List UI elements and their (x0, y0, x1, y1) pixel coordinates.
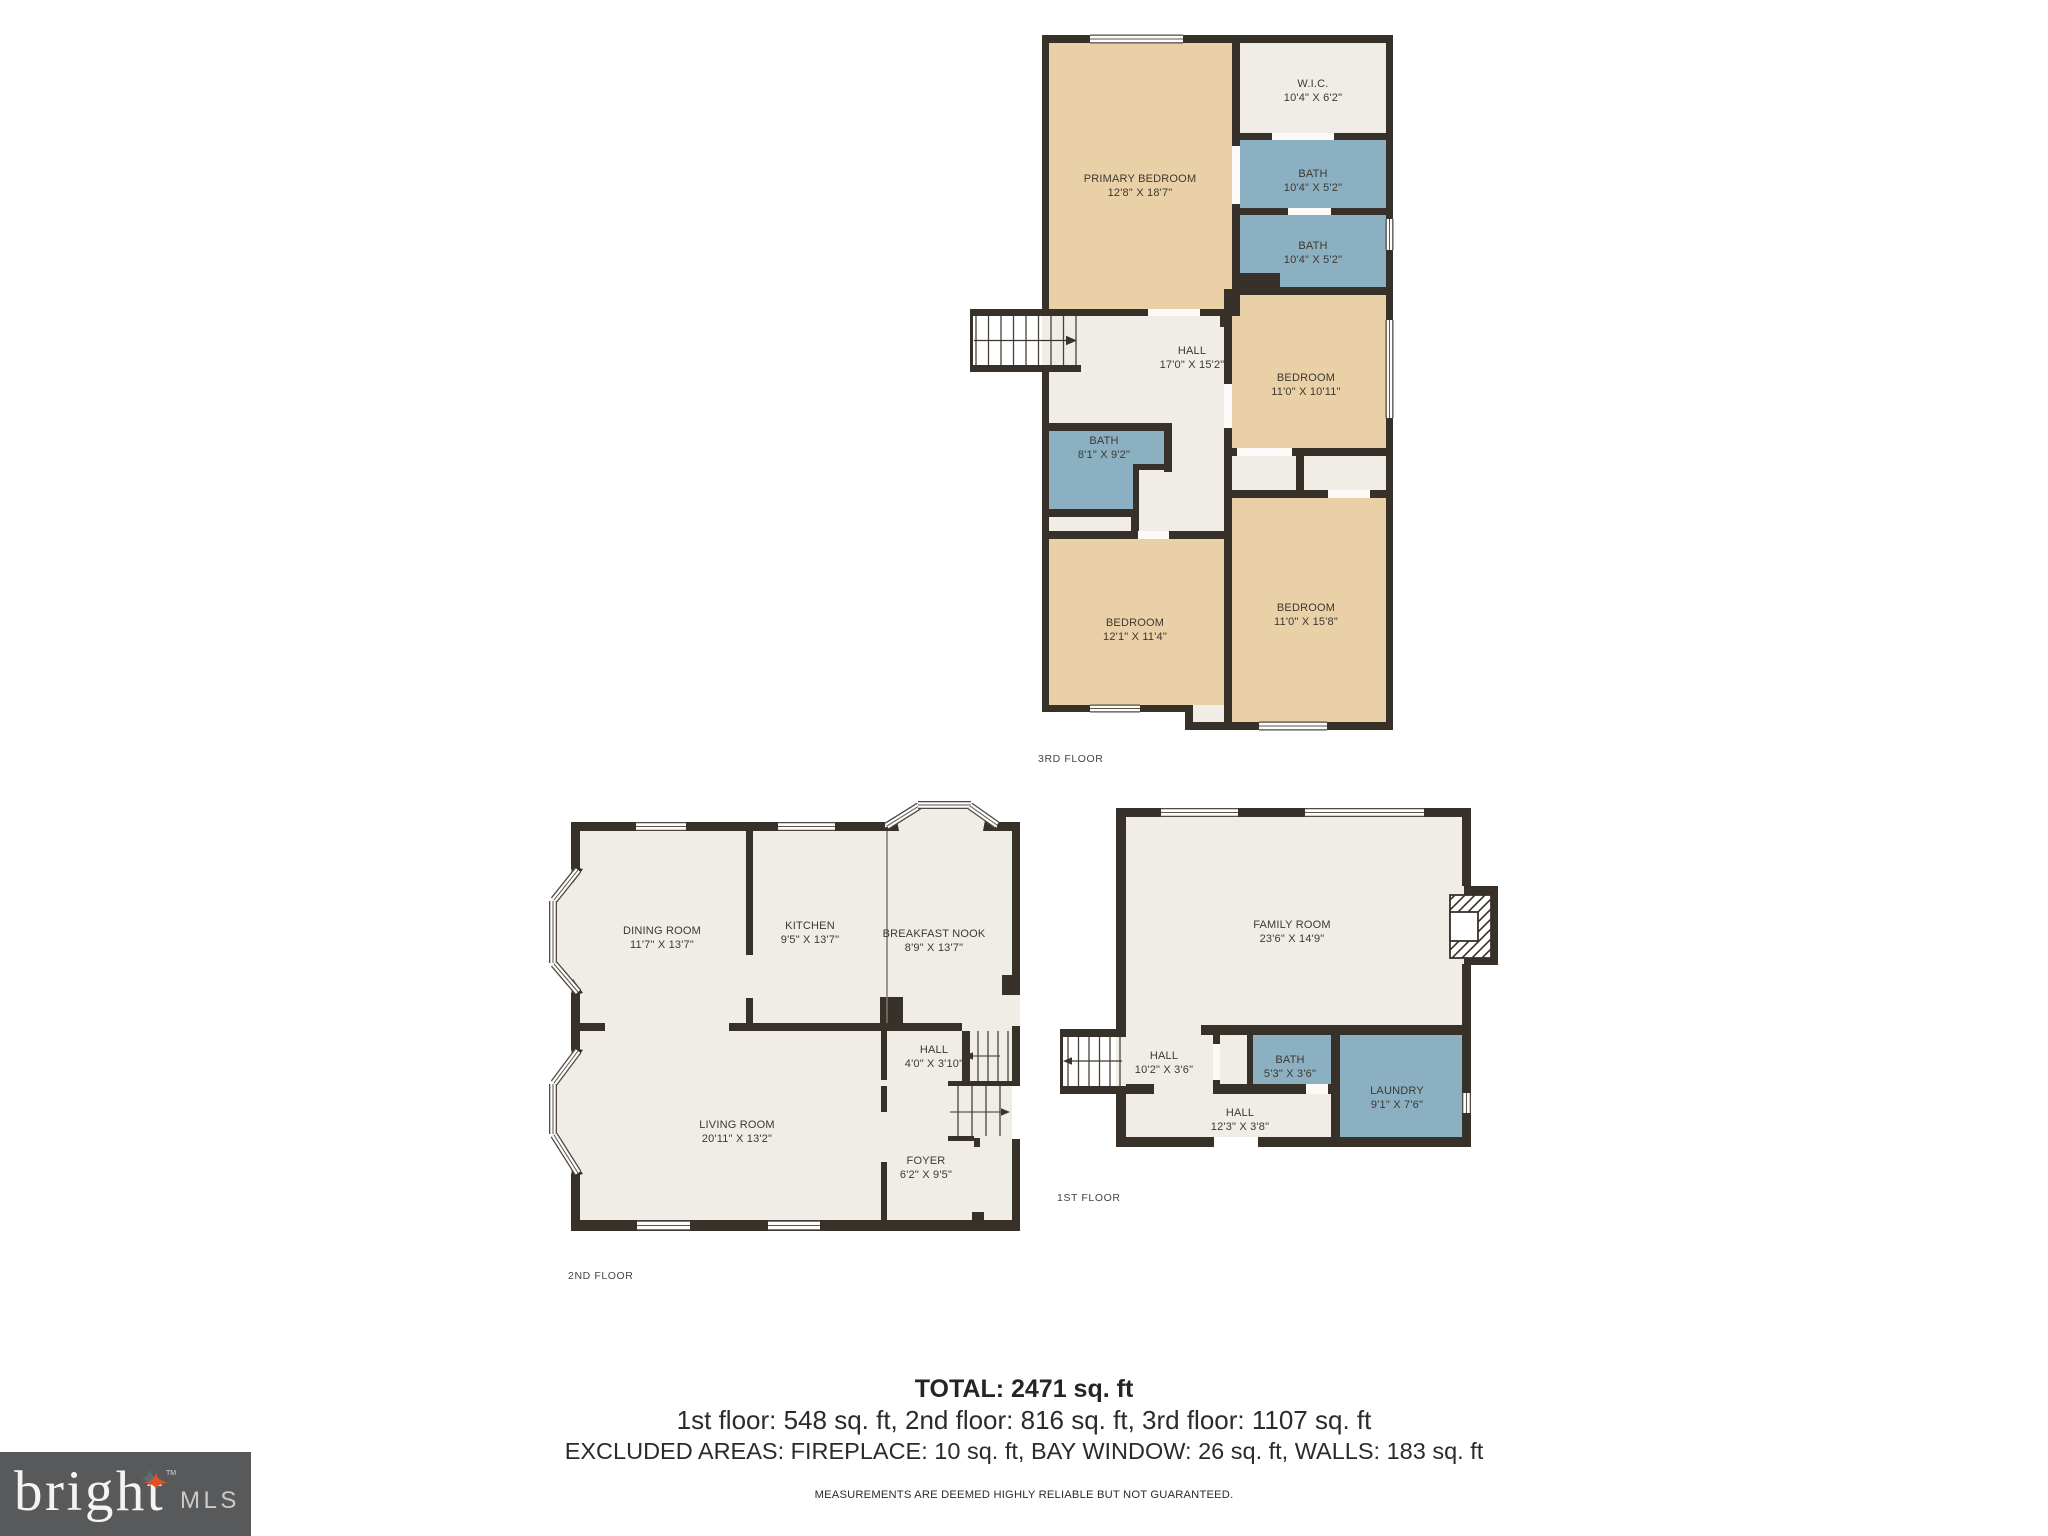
svg-text:W.I.C.: W.I.C. (1297, 78, 1328, 90)
svg-text:DINING ROOM: DINING ROOM (623, 925, 701, 937)
svg-text:BATH: BATH (1298, 168, 1327, 180)
svg-text:MLS: MLS (180, 1487, 240, 1514)
svg-text:BATH: BATH (1298, 240, 1327, 252)
svg-text:10'4" X 5'2": 10'4" X 5'2" (1284, 254, 1342, 266)
svg-text:5'3" X 3'6": 5'3" X 3'6" (1264, 1068, 1316, 1080)
svg-text:TOTAL: 2471 sq. ft: TOTAL: 2471 sq. ft (915, 1375, 1134, 1403)
svg-text:2ND FLOOR: 2ND FLOOR (568, 1270, 634, 1282)
svg-text:LIVING ROOM: LIVING ROOM (699, 1119, 775, 1131)
svg-text:BATH: BATH (1275, 1054, 1304, 1066)
svg-text:12'1" X 11'4": 12'1" X 11'4" (1103, 631, 1167, 643)
svg-text:6'2" X 9'5": 6'2" X 9'5" (900, 1169, 952, 1181)
svg-text:12'8" X 18'7": 12'8" X 18'7" (1108, 187, 1173, 199)
svg-text:11'0" X 15'8": 11'0" X 15'8" (1274, 616, 1338, 628)
svg-text:HALL: HALL (920, 1044, 948, 1056)
svg-text:BREAKFAST NOOK: BREAKFAST NOOK (883, 928, 986, 940)
svg-text:FOYER: FOYER (907, 1155, 946, 1167)
svg-text:9'5" X 13'7": 9'5" X 13'7" (781, 934, 839, 946)
svg-text:9'1" X 7'6": 9'1" X 7'6" (1371, 1099, 1423, 1111)
svg-text:KITCHEN: KITCHEN (785, 920, 835, 932)
svg-text:4'0" X 3'10": 4'0" X 3'10" (905, 1058, 963, 1070)
svg-text:bright: bright (14, 1460, 165, 1523)
svg-text:1ST FLOOR: 1ST FLOOR (1057, 1192, 1121, 1204)
svg-text:HALL: HALL (1178, 345, 1206, 357)
svg-text:MEASUREMENTS ARE DEEMED HIGHLY: MEASUREMENTS ARE DEEMED HIGHLY RELIABLE … (815, 1489, 1234, 1501)
svg-text:11'0" X 10'11": 11'0" X 10'11" (1271, 386, 1340, 398)
svg-text:12'3" X 3'8": 12'3" X 3'8" (1211, 1121, 1269, 1133)
svg-text:HALL: HALL (1226, 1107, 1254, 1119)
svg-text:10'2" X 3'6": 10'2" X 3'6" (1135, 1064, 1193, 1076)
svg-text:BEDROOM: BEDROOM (1277, 372, 1335, 384)
svg-text:20'11" X 13'2": 20'11" X 13'2" (702, 1133, 772, 1145)
svg-text:BEDROOM: BEDROOM (1106, 617, 1164, 629)
svg-text:FAMILY ROOM: FAMILY ROOM (1253, 919, 1331, 931)
svg-text:11'7" X 13'7": 11'7" X 13'7" (630, 939, 694, 951)
svg-text:HALL: HALL (1150, 1050, 1178, 1062)
svg-text:TM: TM (166, 1470, 176, 1477)
svg-text:8'1" X 9'2": 8'1" X 9'2" (1078, 449, 1130, 461)
svg-text:BEDROOM: BEDROOM (1277, 602, 1335, 614)
svg-text:LAUNDRY: LAUNDRY (1370, 1085, 1424, 1097)
svg-text:PRIMARY BEDROOM: PRIMARY BEDROOM (1084, 173, 1197, 185)
svg-text:3RD FLOOR: 3RD FLOOR (1038, 753, 1104, 765)
svg-text:8'9" X 13'7": 8'9" X 13'7" (905, 942, 963, 954)
svg-text:10'4" X 6'2": 10'4" X 6'2" (1284, 92, 1342, 104)
svg-text:BATH: BATH (1089, 435, 1118, 447)
svg-text:1st floor: 548 sq. ft, 2nd flo: 1st floor: 548 sq. ft, 2nd floor: 816 sq… (677, 1405, 1372, 1435)
svg-text:17'0" X 15'2": 17'0" X 15'2" (1160, 359, 1225, 371)
svg-text:EXCLUDED AREAS: FIREPLACE: 10: EXCLUDED AREAS: FIREPLACE: 10 sq. ft, BA… (565, 1438, 1484, 1464)
svg-text:10'4" X 5'2": 10'4" X 5'2" (1284, 182, 1342, 194)
svg-text:23'6" X 14'9": 23'6" X 14'9" (1260, 933, 1325, 945)
